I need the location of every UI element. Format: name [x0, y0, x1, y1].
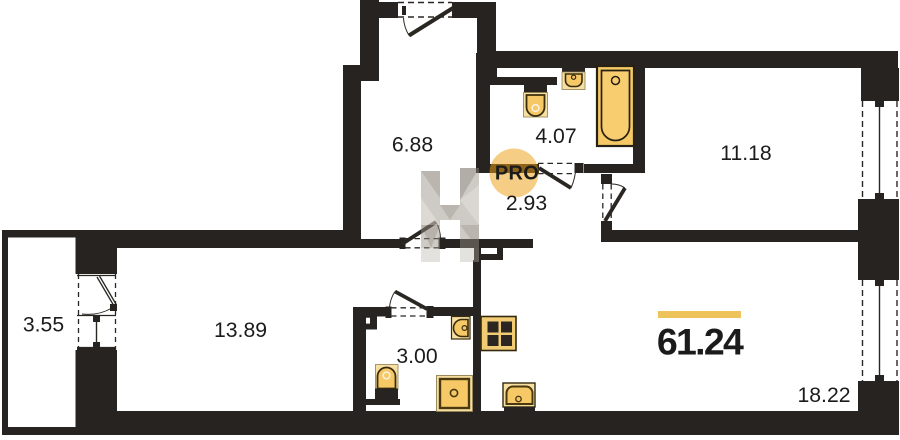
svg-text:4.07: 4.07 — [535, 125, 576, 148]
svg-text:13.89: 13.89 — [214, 319, 267, 342]
svg-text:3.55: 3.55 — [23, 314, 64, 337]
svg-text:11.18: 11.18 — [720, 142, 771, 165]
svg-text:18.22: 18.22 — [797, 384, 850, 407]
svg-text:2.93: 2.93 — [506, 192, 547, 215]
svg-text:3.00: 3.00 — [396, 345, 437, 368]
svg-text:6.88: 6.88 — [392, 134, 433, 157]
svg-text:61.24: 61.24 — [657, 321, 744, 363]
svg-text:PRO: PRO — [495, 163, 539, 185]
